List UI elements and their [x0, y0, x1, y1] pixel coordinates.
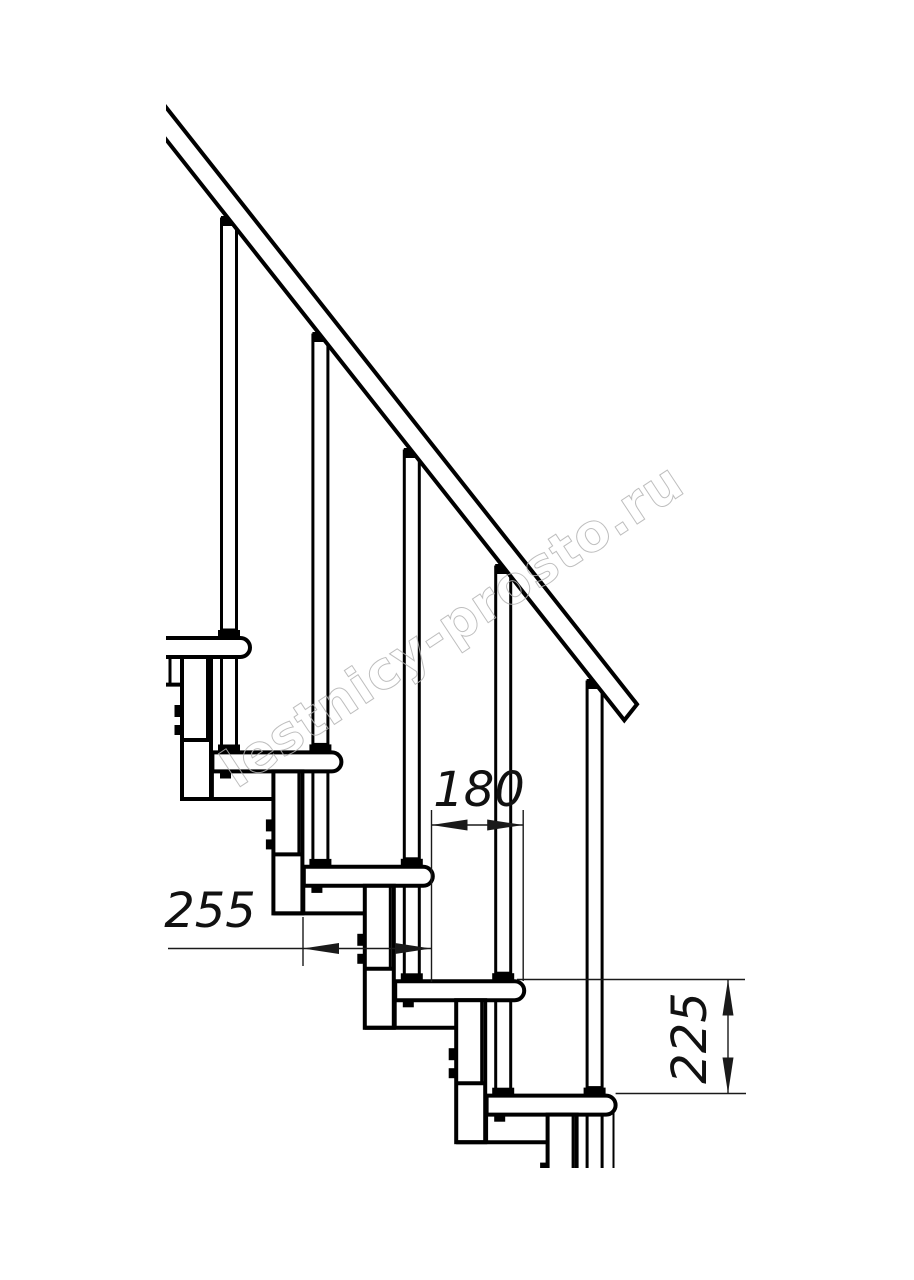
arrow-right-icon [395, 943, 431, 954]
arrow-left-icon [303, 943, 339, 954]
dimension-run-label: 180 [433, 762, 525, 818]
dimension-rise-label: 225 [662, 992, 718, 1084]
stair-module-5 [487, 1096, 639, 1257]
baluster-1 [218, 216, 240, 638]
dimension-rise-225: 225 [517, 980, 746, 1094]
arrow-down-icon [723, 1058, 734, 1094]
staircase-drawing-page: 255 180 225 lestnicy-prosto.ru [0, 0, 914, 1280]
stair-module-4 [395, 981, 547, 1142]
arrow-up-icon [723, 980, 734, 1016]
stair-modules [121, 638, 639, 1257]
arrow-left-icon [432, 820, 468, 831]
staircase-drawing-svg: 255 180 225 lestnicy-prosto.ru [0, 0, 914, 1280]
baluster-5 [584, 679, 606, 1096]
dimension-depth-label: 255 [164, 883, 256, 939]
